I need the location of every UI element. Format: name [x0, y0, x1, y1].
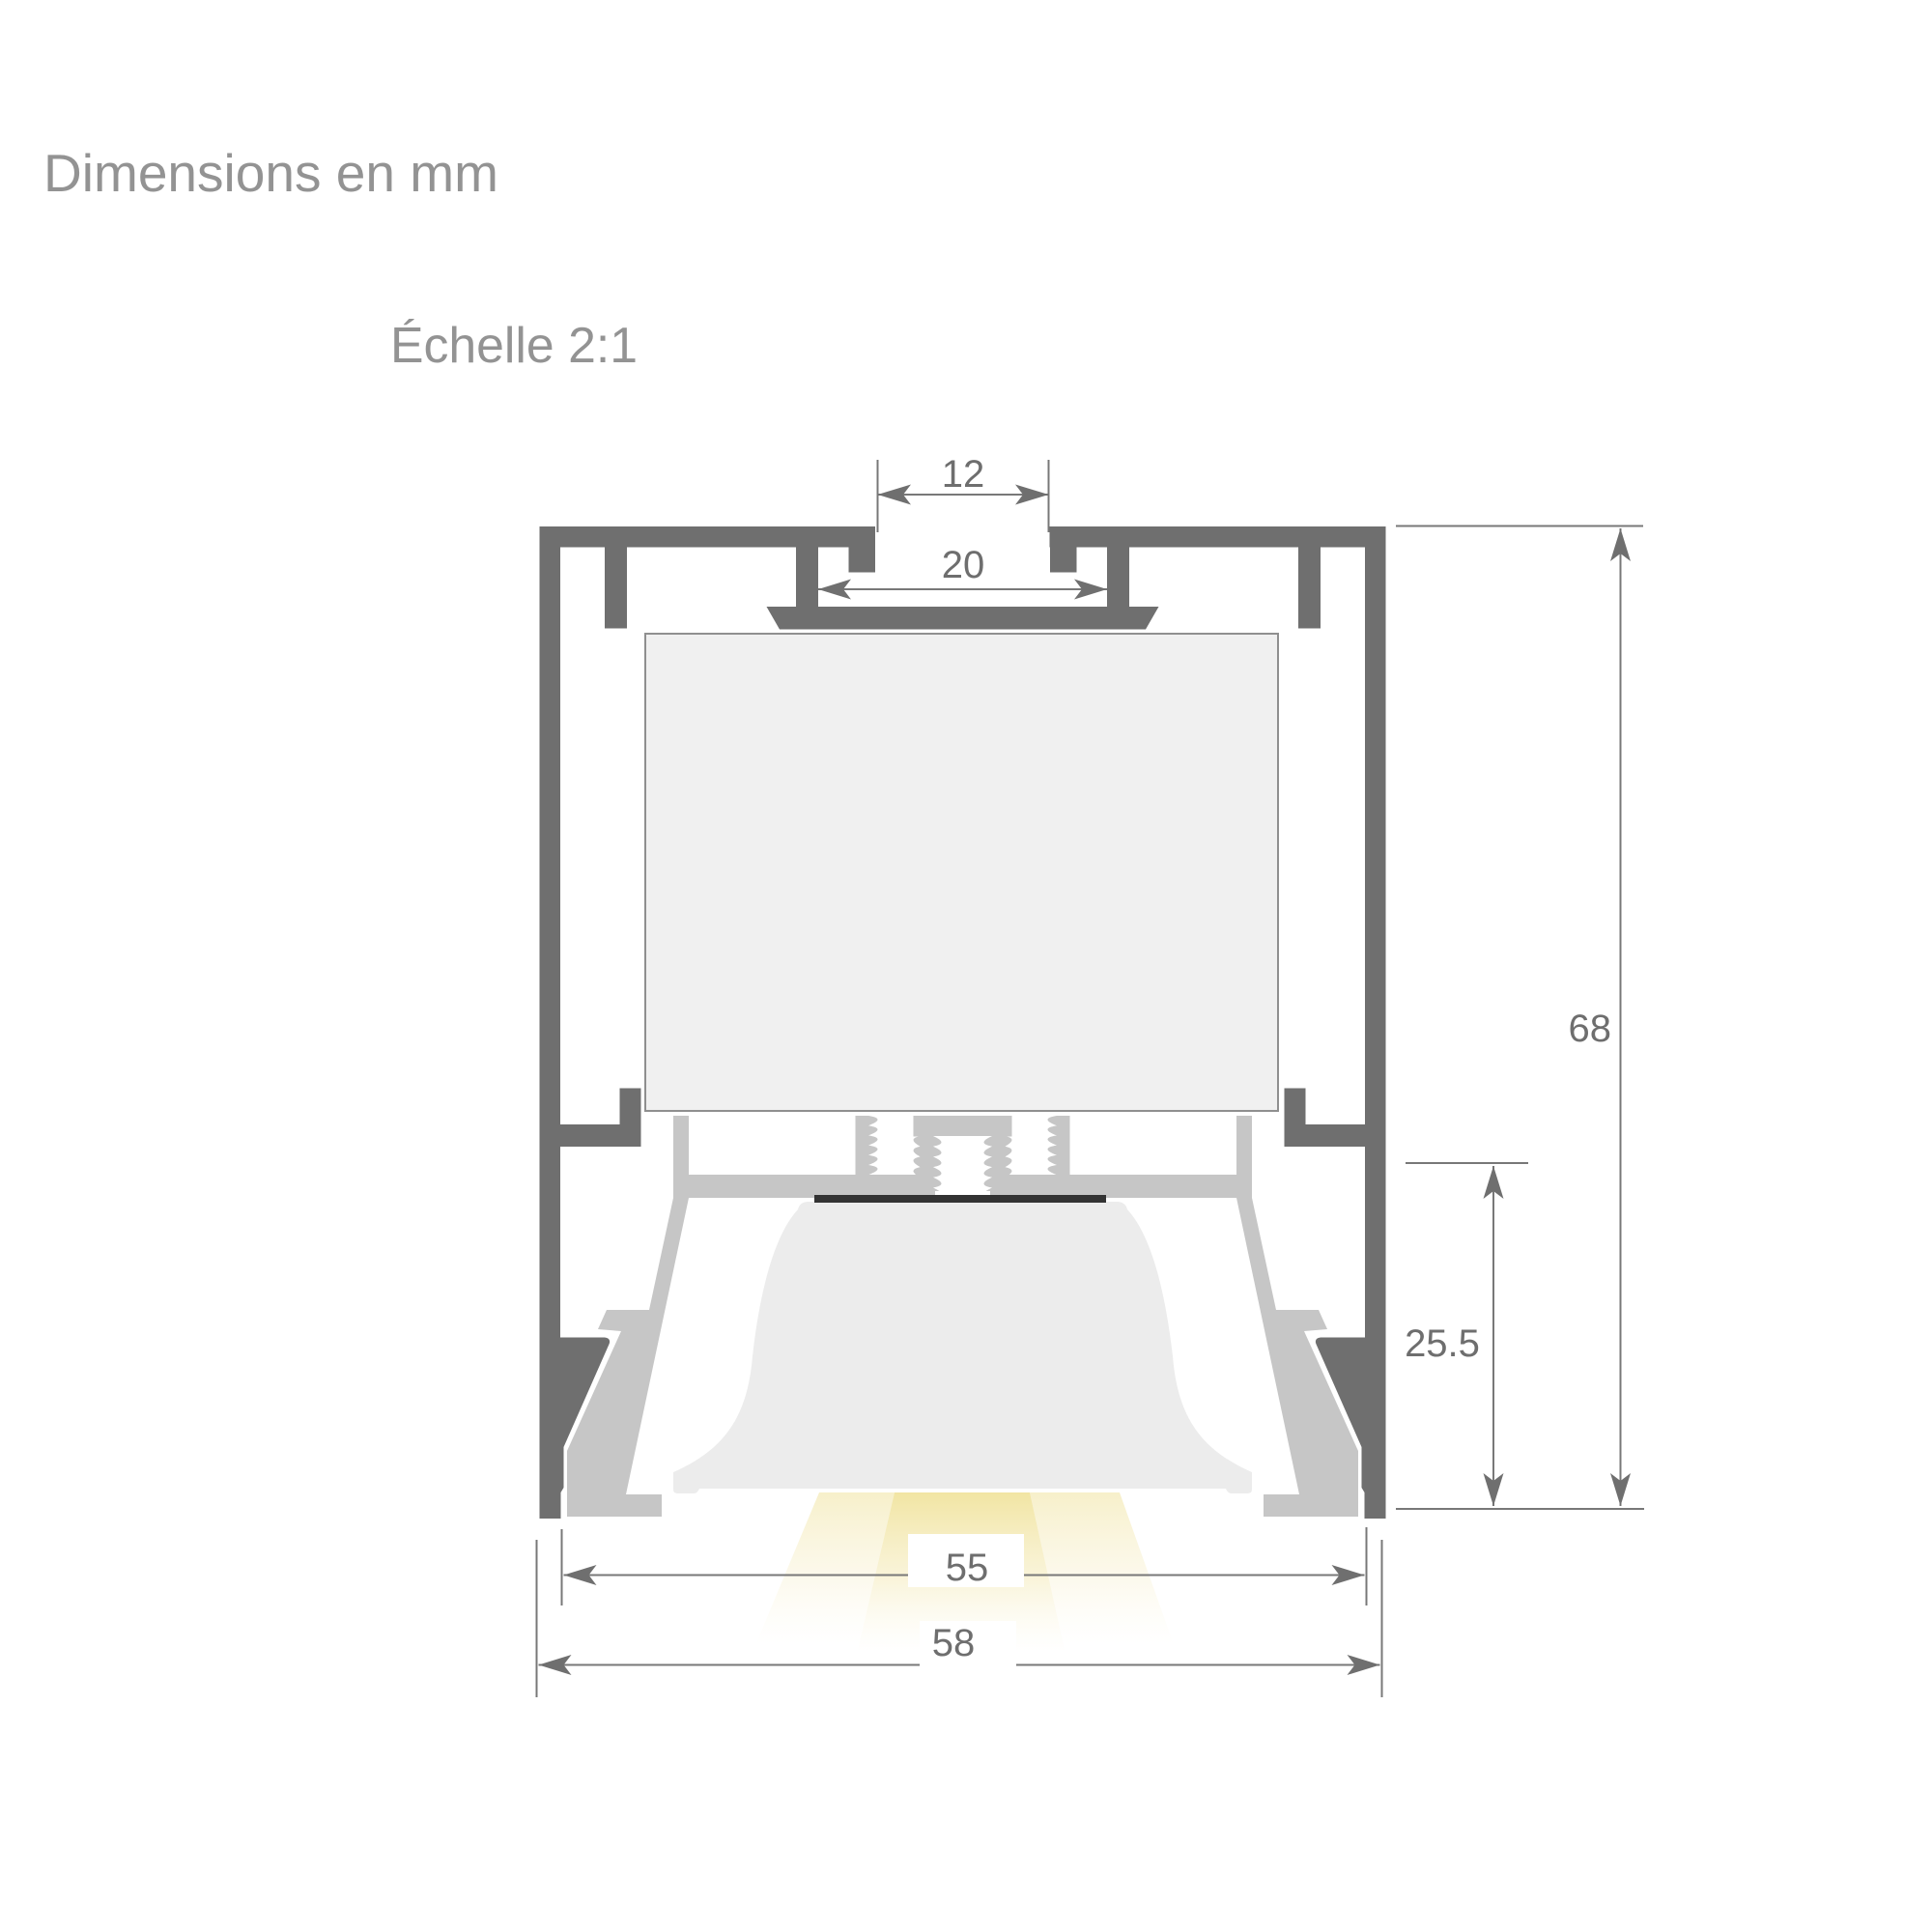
svg-text:68: 68: [1569, 1008, 1612, 1050]
svg-text:55: 55: [946, 1547, 989, 1589]
svg-text:58: 58: [932, 1622, 976, 1664]
svg-text:Dimensions en mm: Dimensions en mm: [43, 143, 498, 203]
svg-text:25.5: 25.5: [1405, 1322, 1480, 1365]
svg-text:Échelle 2:1: Échelle 2:1: [390, 318, 638, 374]
svg-text:20: 20: [942, 544, 985, 586]
svg-text:12: 12: [942, 453, 985, 496]
